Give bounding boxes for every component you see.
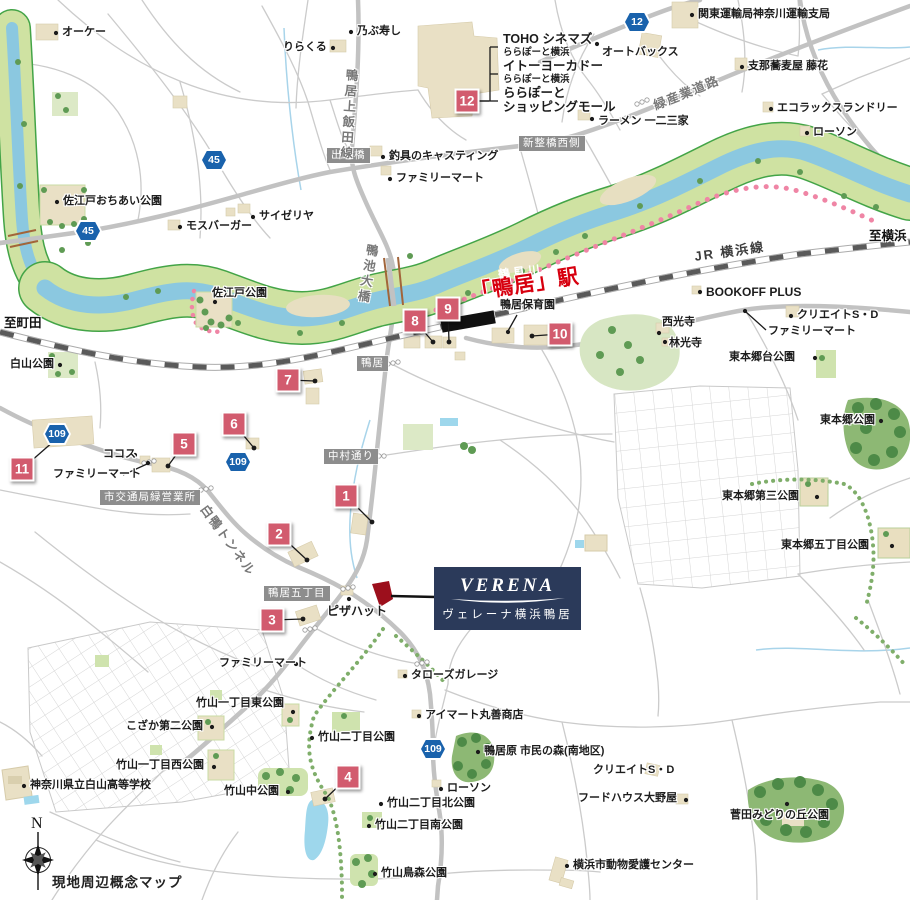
poi-label: イトーヨーカドー (503, 60, 603, 73)
poi-label: 竹山二丁目北公園 (387, 798, 475, 810)
poi-label: 菅田みどりの丘公園 (730, 810, 829, 822)
poi-label: ローソン (813, 127, 857, 139)
poi-label: 林光寺 (669, 338, 702, 350)
poi-label: ファミリーマート (396, 173, 484, 185)
map-marker-9: 9 (436, 297, 461, 322)
poi-label: クリエイトS・D (593, 765, 674, 777)
road-name-label: 鴨池大橋 (352, 242, 381, 306)
poi-label: オーケー (62, 27, 106, 39)
map-marker-7: 7 (276, 368, 301, 393)
project-card: VERENA ヴェレーナ横浜鴨居 (434, 567, 581, 630)
poi-label: 竹山一丁目西公園 (116, 760, 204, 772)
poi-label: ローソン (447, 783, 491, 795)
shield-number: 109 (226, 453, 250, 471)
poi-label: 神奈川県立白山高等学校 (30, 780, 151, 792)
project-logo: VERENA (460, 576, 555, 595)
route-shield-109: 109 (224, 451, 252, 473)
poi-label: 鴨居保育園 (500, 300, 555, 312)
shield-number: 109 (45, 425, 69, 443)
poi-label: 支那蕎麦屋 藤花 (748, 61, 828, 73)
poi-label: 竹山鳥森公園 (381, 868, 447, 880)
poi-label: 西光寺 (662, 317, 695, 329)
map-marker-5: 5 (172, 432, 197, 457)
project-name: ヴェレーナ横浜鴨居 (442, 610, 573, 622)
shield-number: 12 (625, 13, 649, 31)
poi-label: ららぽーと横浜 (503, 48, 570, 58)
poi-label: 横浜市動物愛護センター (573, 860, 694, 872)
area-name-badge: 市交通局緑営業所 (100, 490, 200, 505)
poi-label: 乃ぶ寿し (357, 26, 401, 38)
concept-map: 「鴨居」駅 JR 横浜線 鶴見川 現地周辺概念マップ VERENA ヴェレーナ横… (0, 0, 910, 900)
poi-label: BOOKOFF PLUS (706, 286, 801, 299)
map-note: 現地周辺概念マップ (52, 871, 183, 891)
map-marker-11: 11 (10, 457, 35, 482)
poi-label: アイマート丸善商店 (425, 710, 523, 722)
poi-label: 東本郷公園 (820, 415, 875, 427)
poi-label: 竹山二丁目公園 (318, 732, 395, 744)
map-marker-3: 3 (260, 608, 285, 633)
poi-label: 東本郷五丁目公園 (781, 540, 869, 552)
poi-label: ファミリーマート (219, 658, 307, 670)
shield-number: 109 (421, 740, 445, 758)
poi-label: 鴨居原 市民の森(南地区) (484, 746, 604, 758)
road-name-label: 緑産業道路 (650, 70, 722, 114)
poi-label: サイゼリヤ (259, 211, 314, 223)
road-name-label: 白鴨トンネル (197, 500, 262, 579)
route-shield-45: 45 (200, 149, 228, 171)
poi-label: 東本郷第三公園 (722, 491, 799, 503)
compass-north-label: N (31, 815, 43, 832)
route-shield-45: 45 (74, 220, 102, 242)
poi-label: モスバーガー (186, 221, 252, 233)
poi-label: ココス (103, 449, 136, 461)
poi-label: ピザハット (327, 605, 387, 618)
area-name-badge: 鴨居 (357, 356, 388, 371)
map-marker-4: 4 (336, 765, 361, 790)
poi-label: 関東運輸局神奈川運輸支局 (698, 9, 830, 21)
rail-line-label: JR 横浜線 (693, 236, 766, 265)
area-name-badge: 鴨居五丁目 (264, 586, 330, 601)
poi-label: ラーメン 一二三家 (598, 116, 689, 128)
poi-label: 竹山中公園 (224, 786, 279, 798)
poi-label: 佐江戸公園 (212, 288, 267, 300)
poi-label: TOHO シネマズ (503, 33, 592, 46)
poi-label: オートバックス (602, 47, 679, 59)
map-marker-8: 8 (403, 309, 428, 334)
map-marker-6: 6 (222, 412, 247, 437)
route-shield-12: 12 (623, 11, 651, 33)
poi-label: 釣具のキャスティング (389, 151, 498, 163)
map-marker-1: 1 (334, 484, 359, 509)
poi-label: エコラックスランドリー (777, 103, 898, 115)
area-name-badge: 中村通り (324, 449, 378, 464)
compass-rose-icon: N (16, 812, 60, 894)
poi-label: 竹山二丁目南公園 (375, 820, 463, 832)
poi-label: ショッピングモール (503, 101, 616, 114)
poi-label: クリエイトS・D (797, 310, 878, 322)
poi-label: タローズガレージ (411, 670, 498, 682)
poi-label: こざか第二公園 (126, 721, 203, 733)
poi-label: りらくる (283, 42, 327, 54)
poi-label: ファミリーマート (53, 469, 141, 481)
area-name-badge: 新整橋西側 (519, 136, 585, 151)
map-marker-12: 12 (455, 89, 480, 114)
direction-label: 至町田 (4, 312, 42, 331)
map-marker-2: 2 (267, 522, 292, 547)
direction-label: 至横浜 (869, 225, 907, 244)
poi-label: ららぽーと (503, 87, 566, 100)
route-shield-109: 109 (43, 423, 71, 445)
shield-number: 45 (202, 151, 226, 169)
poi-label: ららぽーと横浜 (503, 75, 570, 85)
poi-label: 佐江戸おちあい公園 (63, 196, 162, 208)
map-marker-10: 10 (548, 322, 573, 347)
poi-label: 白山公園 (10, 359, 54, 371)
shield-number: 45 (76, 222, 100, 240)
poi-label: 竹山一丁目東公園 (196, 698, 284, 710)
logo-swoosh-icon (449, 597, 567, 605)
poi-label: フードハウス大野屋 (578, 793, 677, 805)
poi-label: ファミリーマート (768, 326, 856, 338)
poi-label: 東本郷台公園 (729, 352, 795, 364)
route-shield-109: 109 (419, 738, 447, 760)
label-layer: 「鴨居」駅 JR 横浜線 鶴見川 現地周辺概念マップ VERENA ヴェレーナ横… (0, 0, 910, 900)
